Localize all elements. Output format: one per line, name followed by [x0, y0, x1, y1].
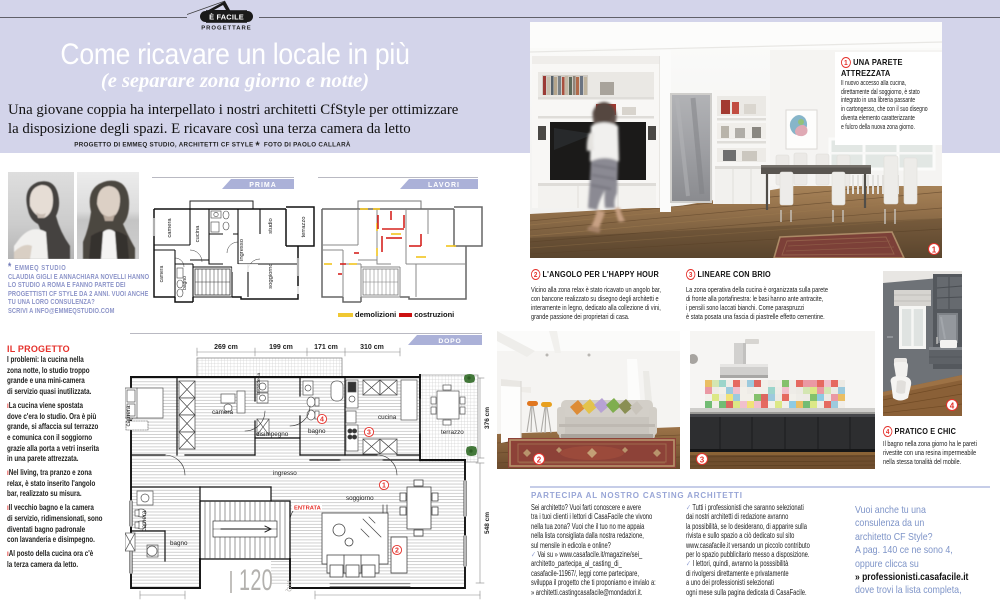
- svg-text:terrazzo: terrazzo: [441, 429, 464, 436]
- svg-text:bagno: bagno: [182, 276, 188, 290]
- svg-text:4: 4: [320, 417, 324, 424]
- svg-text:cucina: cucina: [195, 225, 201, 243]
- svg-text:soggiorno: soggiorno: [268, 263, 274, 288]
- svg-text:ingresso: ingresso: [239, 239, 245, 261]
- svg-text:1: 1: [382, 483, 386, 490]
- svg-text:ENTRATA: ENTRATA: [294, 506, 322, 512]
- svg-text:camera: camera: [125, 405, 132, 426]
- svg-text:2: 2: [537, 456, 542, 465]
- svg-text:cucina: cucina: [378, 414, 397, 421]
- svg-text:4: 4: [950, 402, 955, 411]
- svg-text:bagno: bagno: [170, 540, 188, 547]
- svg-text:199 cm: 199 cm: [269, 344, 293, 351]
- svg-text:3: 3: [367, 430, 371, 437]
- svg-text:studio: studio: [268, 218, 274, 233]
- svg-text:310 cm: 310 cm: [360, 344, 384, 351]
- svg-text:171 cm: 171 cm: [314, 344, 338, 351]
- svg-text:PRIMA: PRIMA: [249, 182, 277, 189]
- svg-text:camera: camera: [141, 510, 148, 531]
- svg-text:LAVORI: LAVORI: [428, 182, 460, 189]
- svg-text:camera: camera: [167, 218, 173, 238]
- svg-text:PROGETTARE: PROGETTARE: [201, 26, 251, 32]
- svg-text:È FACILE: È FACILE: [209, 13, 244, 22]
- svg-text:terrazzo: terrazzo: [301, 217, 307, 238]
- svg-text:2: 2: [395, 548, 399, 555]
- svg-text:ingresso: ingresso: [273, 470, 297, 477]
- svg-text:lavanderia: lavanderia: [256, 373, 262, 395]
- svg-text:soggiorno: soggiorno: [346, 495, 374, 502]
- svg-text:1: 1: [932, 246, 937, 255]
- svg-text:bagno: bagno: [308, 428, 326, 435]
- svg-text:camera: camera: [212, 409, 233, 416]
- svg-text:269 cm: 269 cm: [214, 344, 238, 351]
- svg-text:disimpegno: disimpegno: [256, 431, 289, 438]
- svg-text:3: 3: [700, 456, 705, 465]
- svg-text:376 cm: 376 cm: [484, 407, 491, 429]
- svg-text:548 cm: 548 cm: [484, 512, 491, 534]
- svg-text:camera: camera: [159, 265, 165, 282]
